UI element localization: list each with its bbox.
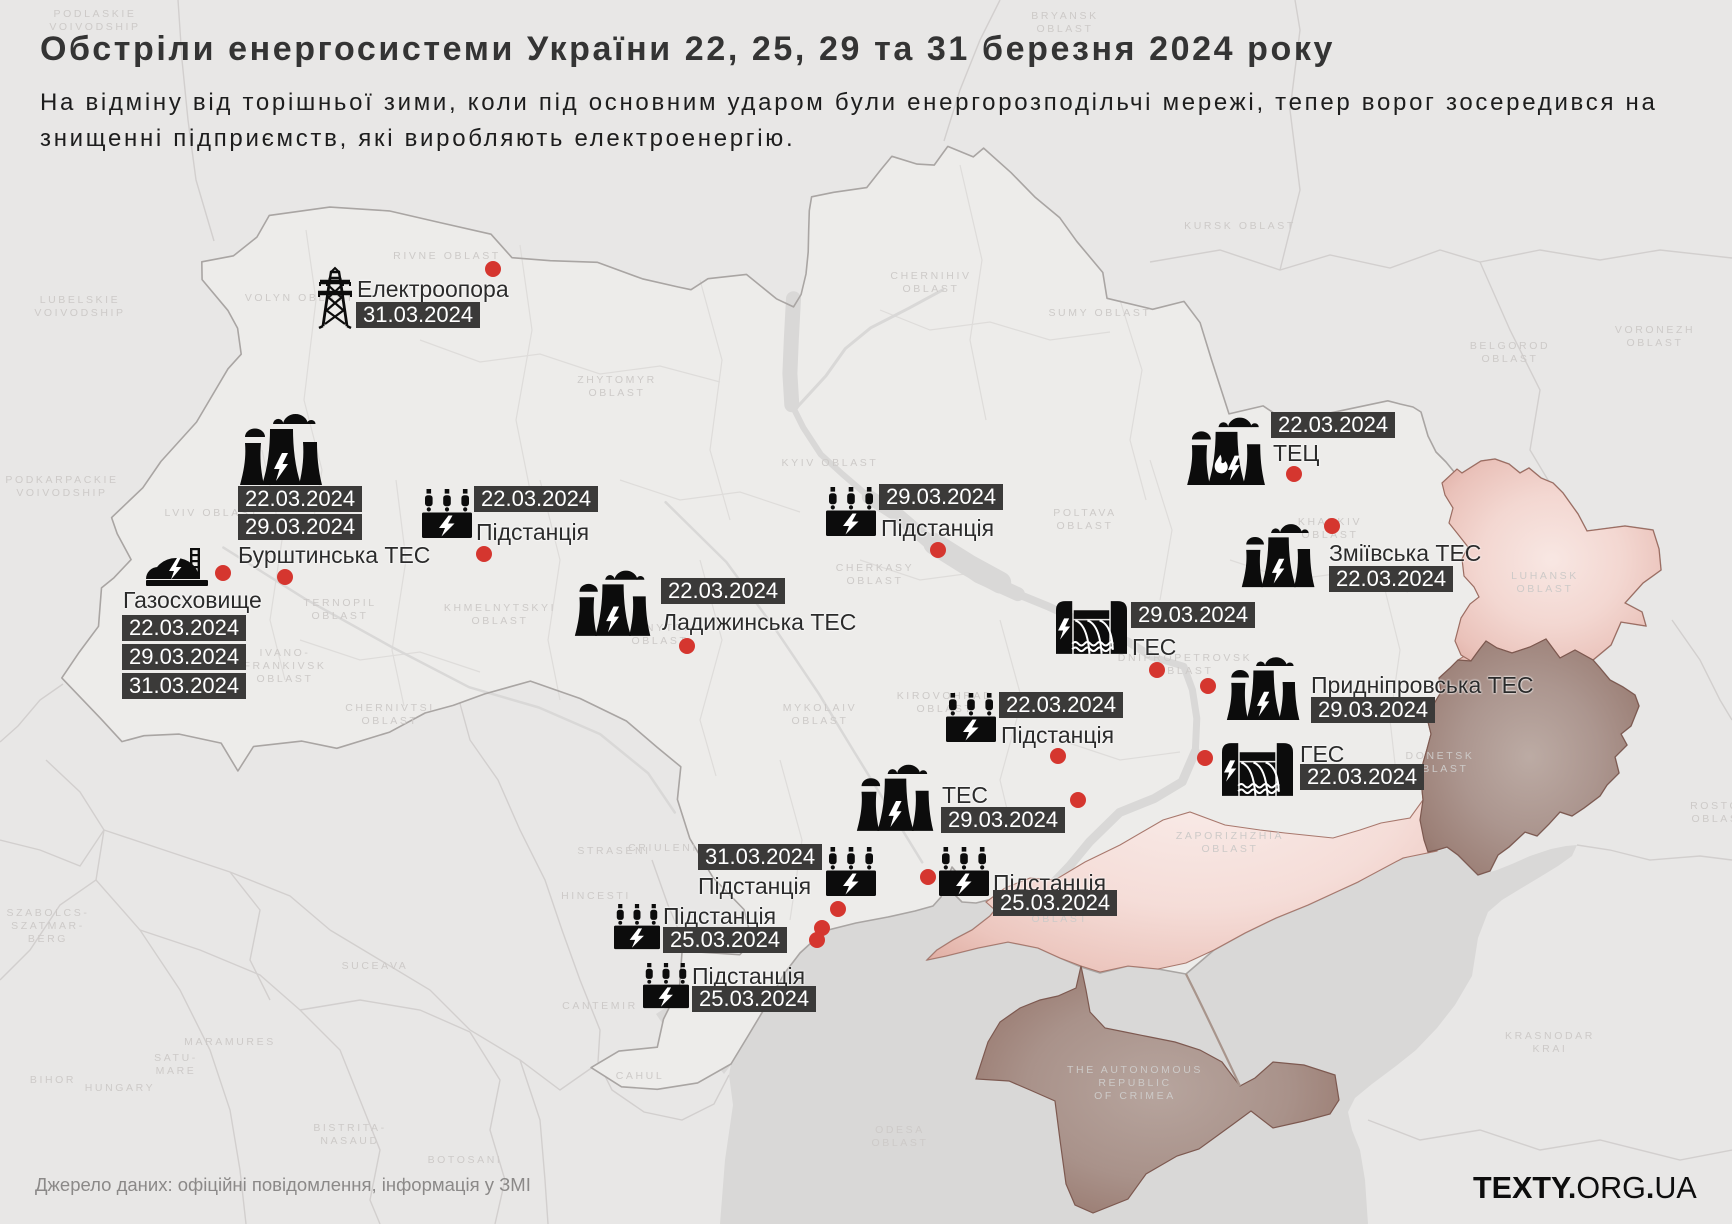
svg-text:CAHUL: CAHUL [616,1070,665,1082]
svg-text:KYIV OBLAST: KYIV OBLAST [782,457,879,469]
svg-text:SUCEAVA: SUCEAVA [342,960,409,972]
svg-text:RIVNE OBLAST: RIVNE OBLAST [393,250,501,262]
svg-text:KURSK OBLAST: KURSK OBLAST [1184,220,1296,232]
svg-text:BISTRITA-NASAUD: BISTRITA-NASAUD [313,1122,386,1147]
svg-text:TERNOPILOBLAST: TERNOPILOBLAST [303,597,376,622]
svg-text:SATU-MARE: SATU-MARE [154,1052,198,1077]
svg-text:CHERNIHIVOBLAST: CHERNIHIVOBLAST [890,270,971,295]
svg-text:CRIULENI: CRIULENI [628,842,698,854]
svg-text:HUNGARY: HUNGARY [85,1082,156,1094]
svg-text:CHERKASYOBLAST: CHERKASYOBLAST [836,562,915,587]
svg-text:MARAMURES: MARAMURES [184,1036,276,1048]
svg-text:ROSTOVOBLAST: ROSTOVOBLAST [1690,800,1732,825]
svg-text:SUMY OBLAST: SUMY OBLAST [1048,307,1151,319]
svg-text:LUHANSKOBLAST: LUHANSKOBLAST [1511,570,1579,595]
svg-text:PODKARPACKIEVOIVODSHIP: PODKARPACKIEVOIVODSHIP [5,474,118,499]
svg-text:HINCESTI: HINCESTI [561,890,631,902]
svg-text:BELGORODOBLAST: BELGORODOBLAST [1470,340,1550,365]
svg-text:LUBELSKIEVOIVODSHIP: LUBELSKIEVOIVODSHIP [34,294,125,319]
svg-text:POLTAVAOBLAST: POLTAVAOBLAST [1053,507,1117,532]
svg-text:ODESAOBLAST: ODESAOBLAST [871,1124,928,1149]
svg-text:BIHOR: BIHOR [30,1074,76,1086]
svg-text:VORONEZHOBLAST: VORONEZHOBLAST [1615,324,1695,349]
svg-text:CANTEMIR: CANTEMIR [562,1000,638,1012]
svg-text:MYKOLAIVOBLAST: MYKOLAIVOBLAST [783,702,857,727]
svg-text:ZHYTOMYROBLAST: ZHYTOMYROBLAST [577,374,657,399]
svg-text:BOTOSANI: BOTOSANI [428,1154,503,1166]
